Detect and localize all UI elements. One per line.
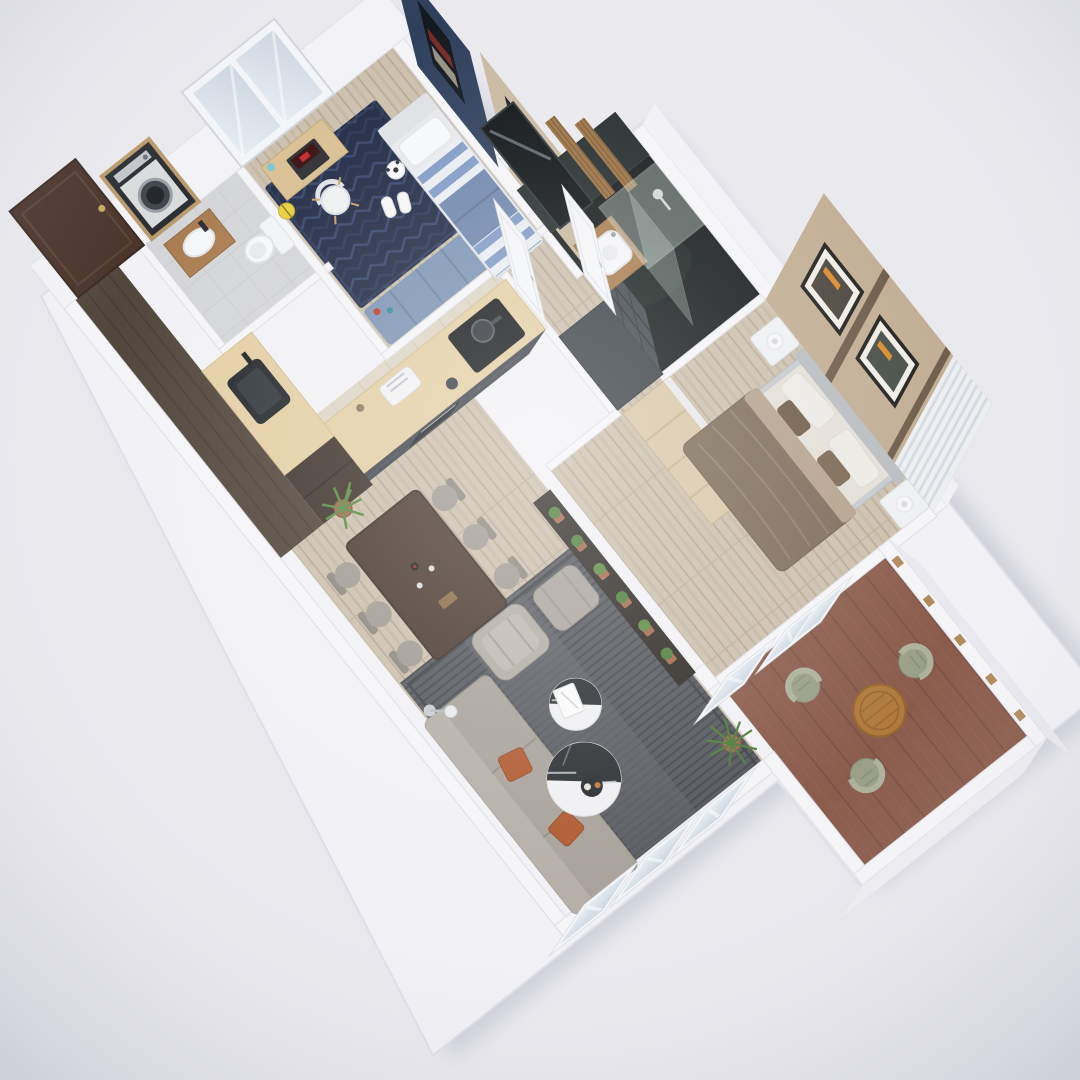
floor-plan-render <box>0 0 1080 1080</box>
